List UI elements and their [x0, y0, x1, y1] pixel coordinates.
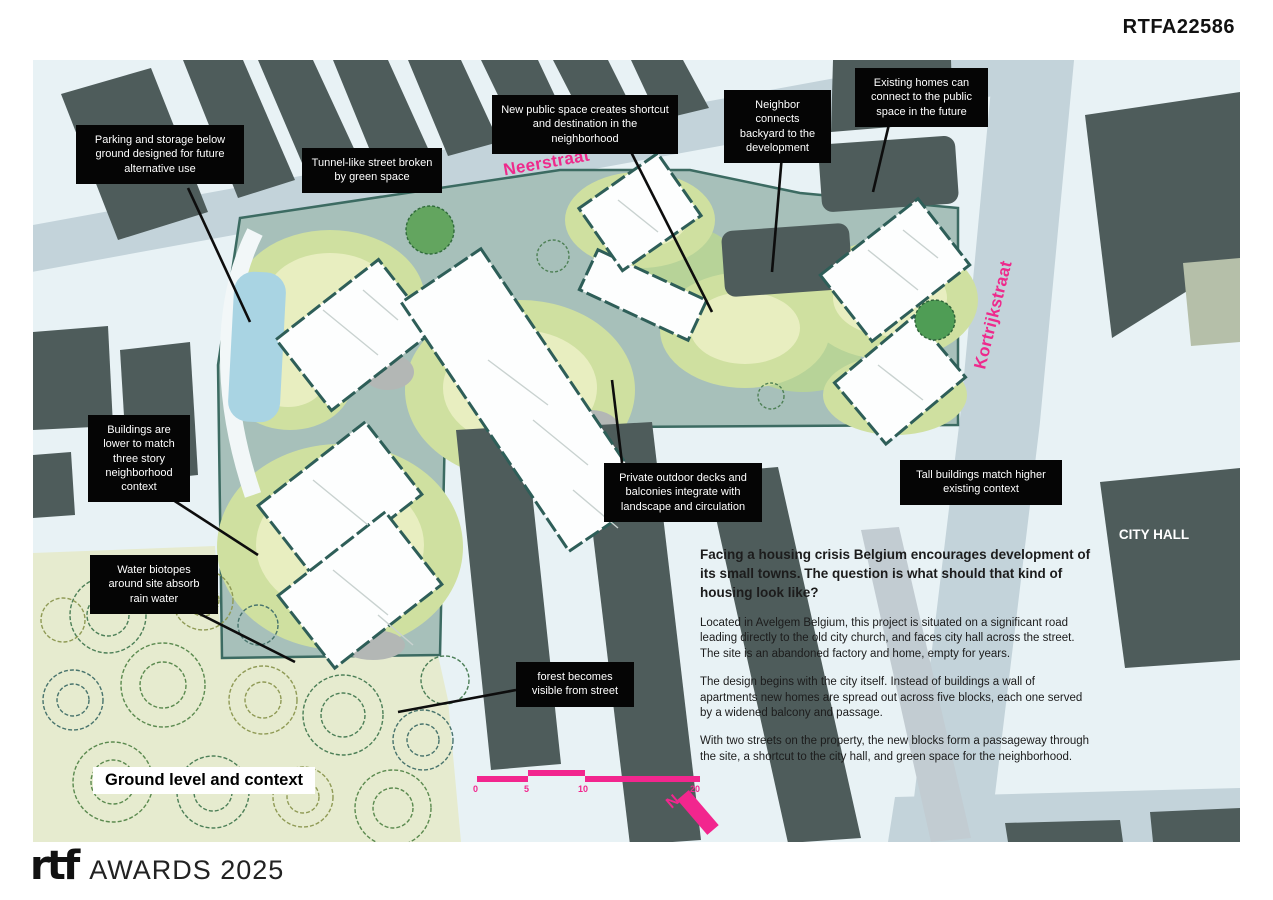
site-plan-canvas: N Neerstraat Kortrijkstraat CITY HALL Pa…	[33, 60, 1240, 842]
project-reference-code: RTFA22586	[1123, 16, 1235, 39]
rtf-brand-text: AWARDS 2025	[89, 855, 284, 886]
scale-label-0: 0	[473, 784, 478, 794]
drawing-title: Ground level and context	[93, 767, 315, 794]
project-description: Facing a housing crisis Belgium encourag…	[700, 546, 1092, 778]
callout-lower-buildings: Buildings are lower to match three story…	[88, 415, 190, 502]
rtf-awards-logo: rtf AWARDS 2025	[30, 846, 284, 886]
callout-new-public-space: New public space creates shortcut and de…	[492, 95, 678, 154]
callout-neighbor-backyard: Neighbor connects backyard to the develo…	[724, 90, 831, 163]
callout-private-decks: Private outdoor decks and balconies inte…	[604, 463, 762, 522]
sage-building	[1183, 258, 1240, 346]
callout-tunnel-street: Tunnel-like street broken by green space	[302, 148, 442, 193]
description-heading: Facing a housing crisis Belgium encourag…	[700, 546, 1092, 603]
rtf-logo-mark: rtf	[30, 846, 77, 886]
callout-water-biotopes: Water biotopes around site absorb rain w…	[90, 555, 218, 614]
callout-parking-storage: Parking and storage below ground designe…	[76, 125, 244, 184]
description-paragraph: Located in Avelgem Belgium, this project…	[700, 616, 1092, 663]
callout-tall-buildings: Tall buildings match higher existing con…	[900, 460, 1062, 505]
city-hall-label: CITY HALL	[1108, 526, 1200, 544]
callout-forest-visible: forest becomes visible from street	[516, 662, 634, 707]
city-hall-building	[1100, 468, 1240, 668]
description-paragraph: The design begins with the city itself. …	[700, 675, 1092, 722]
scale-label-20: 20	[690, 784, 700, 794]
scale-label-5: 5	[524, 784, 529, 794]
scale-label-10: 10	[578, 784, 588, 794]
description-paragraph: With two streets on the property, the ne…	[700, 734, 1092, 766]
callout-existing-homes: Existing homes can connect to the public…	[855, 68, 988, 127]
